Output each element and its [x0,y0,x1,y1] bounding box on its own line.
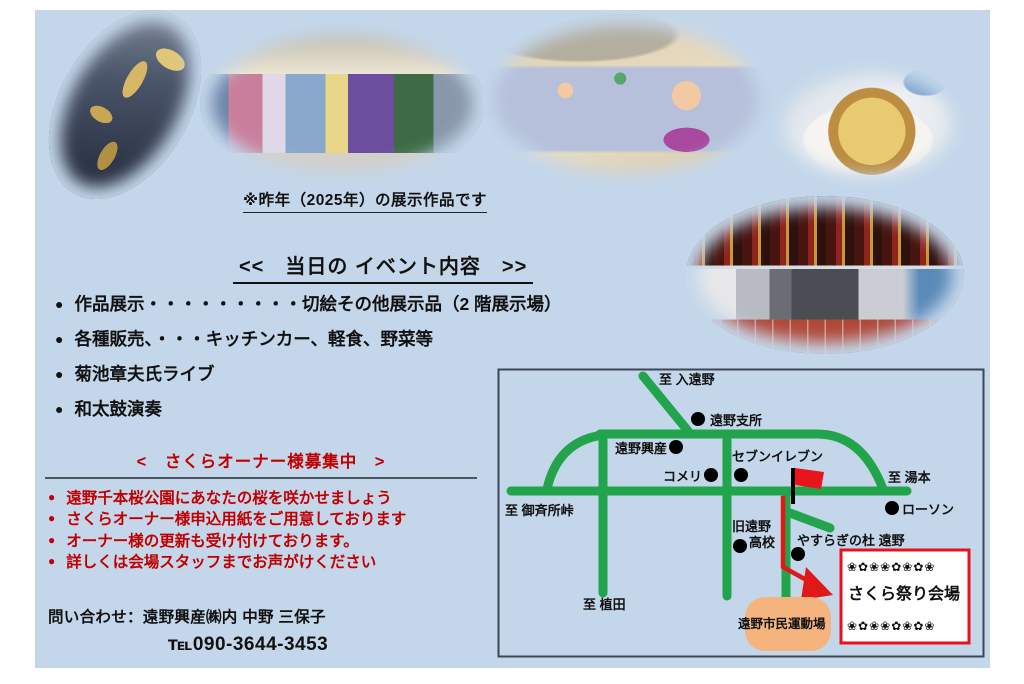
recruit-item-label: オーナー様の更新も受け付けております。 [66,529,359,551]
label-yasuragi: やすらぎの杜 遠野 [797,533,905,548]
event-item: ● 菊池章夫氏ライブ [55,356,562,391]
dot-lawson [885,501,899,515]
label-undojo: 遠野市民運動場 [738,616,826,631]
sakura-border-top-icon: ❀✿❀❀✿❀✿❀ [847,560,935,574]
pizza-photo [772,62,964,188]
event-item: ● 各種販売、・・・キッチンカー、軽食、野菜等 [55,321,562,356]
label-tono-shisho: 遠野支所 [710,413,762,428]
label-to-gosaisho: 至 御斉所峠 [505,503,574,518]
event-item-label: 和太鼓演奏 [74,396,162,421]
flag-cloth [795,468,824,489]
event-item: ● 和太鼓演奏 [55,391,562,426]
bullet-dot-icon: ● [55,366,63,382]
recruit-divider [45,477,477,479]
food-stall-photo [686,196,964,354]
flag-marker-icon [793,468,824,504]
event-item-label: 各種販売、・・・キッチンカー、軽食、野菜等 [74,326,433,351]
label-lawson: ローソン [902,502,954,517]
recruit-item: ● オーナー様の更新も受け付けております。 [48,529,406,551]
bullet-dot-icon: ● [55,331,63,347]
label-to-iritono: 至 入遠野 [659,372,715,387]
dot-yasuragi [791,547,805,561]
sakura-border-bottom-icon: ❀✿❀❀✿❀✿❀ [847,619,935,633]
bullet-dot-icon: ● [55,401,63,417]
label-tono-kosan: 遠野興産 [615,441,667,456]
flyer-page: ※昨年（2025年）の展示作品です << 当日の イベント内容 >> ● 作品展… [0,0,1024,684]
label-venue: さくら祭り会場 [848,584,960,603]
dot-kyu-tono-koko [733,539,747,553]
dot-seven-eleven [734,468,748,482]
access-map: 至 入遠野 遠野支所 遠野興産 セブンイレブン コメリ 至 湯本 ローソン 至 … [497,368,985,658]
label-to-yumoto: 至 湯本 [888,470,931,485]
label-komeri: コメリ [663,469,702,484]
recruit-list: ● 遠野千本桜公園にあなたの桜を咲かせましょう ● さくらオーナー様申込用紙をご… [48,486,406,572]
road-left-arc [547,435,603,489]
recruit-item-label: 詳しくは会場スタッフまでお声がけください [66,550,376,572]
dot-tono-shisho [691,412,705,426]
last-year-caption: ※昨年（2025年）の展示作品です [243,188,487,213]
kids-drawing-photo [482,14,770,184]
dot-tono-kosan [669,440,683,454]
gallery-hall-photo [200,25,485,183]
bullet-dot-icon: ● [48,554,55,568]
venue-box: ❀✿❀❀✿❀✿❀ さくら祭り会場 ❀✿❀❀✿❀✿❀ [841,550,969,643]
bullet-dot-icon: ● [48,490,55,504]
route-arrowhead-icon [801,567,833,600]
recruit-item: ● 遠野千本桜公園にあなたの桜を咲かせましょう [48,486,406,508]
label-seven-eleven: セブンイレブン [732,449,823,464]
label-koko: 高校 [749,535,776,550]
event-list: ● 作品展示・・・・・・・・・切絵その他展示品（2 階展示場） ● 各種販売、・… [55,286,562,426]
recruit-item-label: 遠野千本桜公園にあなたの桜を咲かせましょう [66,486,392,508]
event-heading: << 当日の イベント内容 >> [233,250,533,284]
bullet-dot-icon: ● [55,296,63,312]
contact-line: 問い合わせ：遠野興産㈱内 中野 三保子 [48,605,326,627]
undojo-field: 遠野市民運動場 [738,597,831,651]
recruit-item: ● 詳しくは会場スタッフまでお声がけください [48,551,406,573]
road-short-diagonal [790,513,830,528]
recruit-item: ● さくらオーナー様申込用紙をご用意しております [48,508,406,530]
dot-komeri [704,468,718,482]
bullet-dot-icon: ● [48,511,55,525]
event-item-label: 菊池章夫氏ライブ [74,361,214,386]
recruit-item-label: さくらオーナー様申込用紙をご用意しております [66,507,406,529]
event-item: ● 作品展示・・・・・・・・・切絵その他展示品（2 階展示場） [55,286,562,321]
contact-phone: ℡090-3644-3453 [168,633,328,656]
recruit-heading: < さくらオーナー様募集中 > [45,448,477,472]
event-item-label: 作品展示・・・・・・・・・切絵その他展示品（2 階展示場） [74,291,561,316]
label-kyu-tono: 旧遠野 [732,519,771,534]
label-to-ueda: 至 植田 [583,597,626,612]
bullet-dot-icon: ● [48,533,55,547]
